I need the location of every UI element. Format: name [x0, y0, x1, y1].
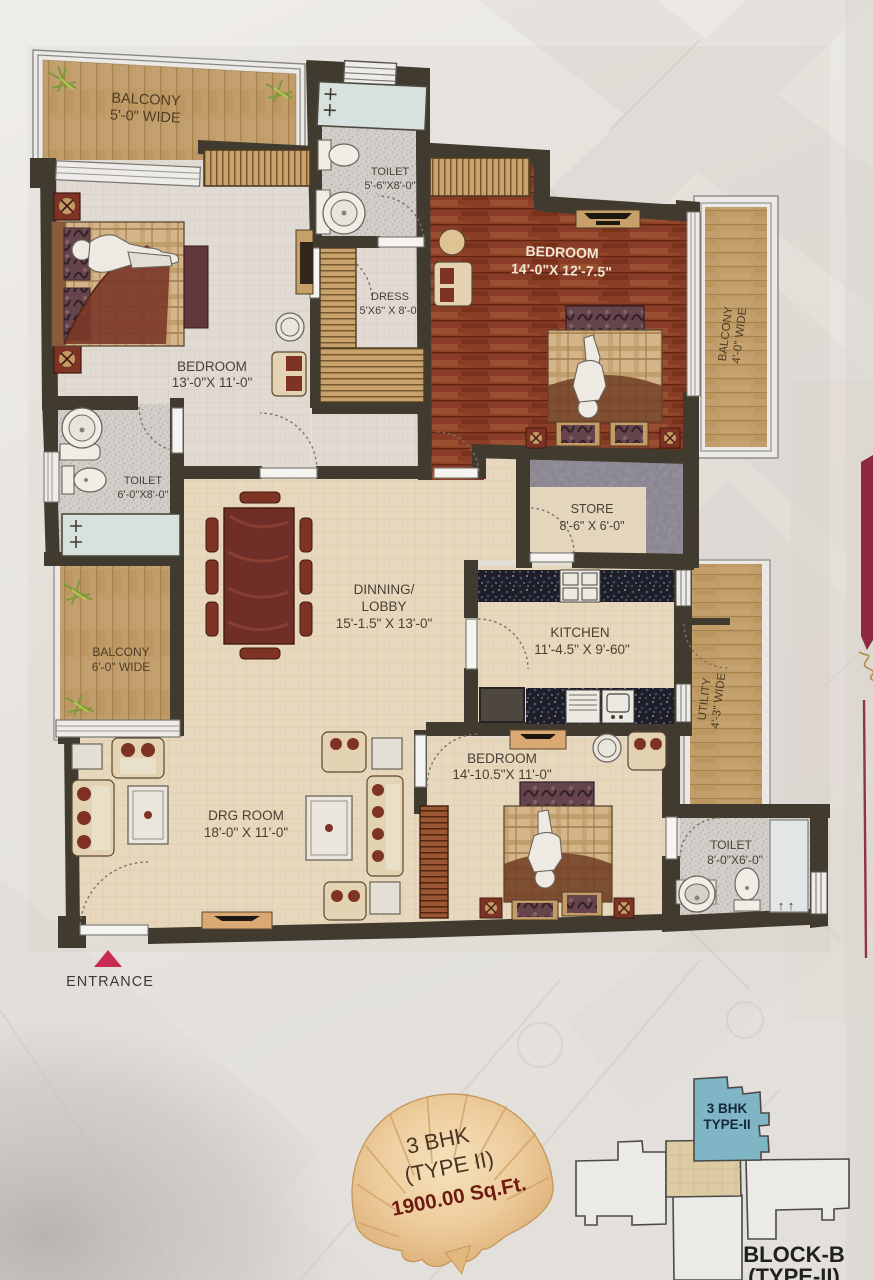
svg-text:ENTRANCE: ENTRANCE [66, 974, 154, 990]
svg-text:3 BHK: 3 BHK [707, 1101, 748, 1116]
svg-text:(TYPE-II): (TYPE-II) [748, 1264, 840, 1280]
svg-text:TYPE-II: TYPE-II [703, 1117, 750, 1132]
